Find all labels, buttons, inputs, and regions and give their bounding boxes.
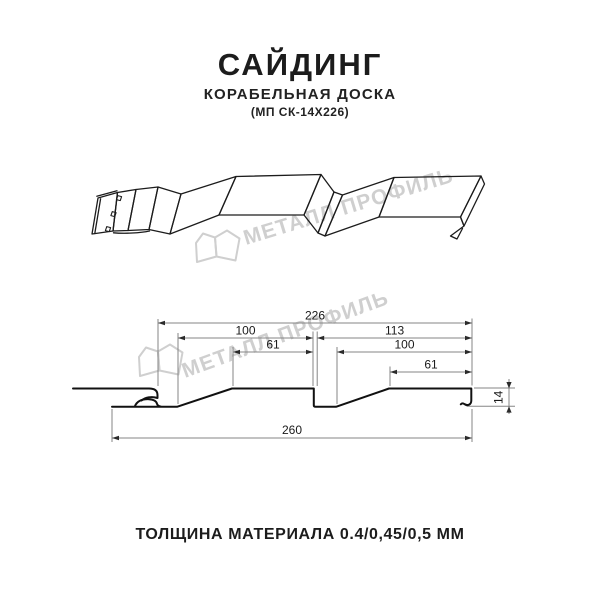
thickness-note: ТОЛЩИНА МАТЕРИАЛА 0.4/0,45/0,5 ММ: [0, 526, 600, 544]
dim-label-right-module: 113: [385, 324, 404, 338]
dimension-lines: [112, 319, 515, 443]
watermark-lower: МЕТАЛЛ ПРОФИЛЬ: [139, 286, 392, 382]
watermark-text: МЕТАЛЛ ПРОФИЛЬ: [179, 286, 392, 382]
profile-outline: [73, 389, 471, 407]
dim-label-overall: 260: [282, 423, 302, 437]
dim-label-total: 226: [305, 309, 325, 323]
dimension-arrows: [112, 321, 512, 440]
dim-label-right-inner: 100: [394, 338, 414, 352]
dim-label-right-flat: 61: [424, 358, 438, 372]
technical-drawing: МЕТАЛЛ ПРОФИЛЬ: [0, 0, 600, 600]
nail-hole: [105, 227, 110, 232]
dim-label-left-flat: 61: [266, 338, 280, 352]
footer: ТОЛЩИНА МАТЕРИАЛА 0.4/0,45/0,5 ММ: [0, 526, 600, 544]
lock-channel: [113, 187, 181, 234]
brand-logo-icon: [139, 345, 183, 377]
product-card: САЙДИНГ КОРАБЕЛЬНАЯ ДОСКА (МП СК-14Х226)…: [0, 0, 600, 600]
brand-logo-icon: [196, 231, 240, 263]
dim-label-depth: 14: [492, 390, 506, 404]
dim-label-left-module: 100: [235, 324, 255, 338]
